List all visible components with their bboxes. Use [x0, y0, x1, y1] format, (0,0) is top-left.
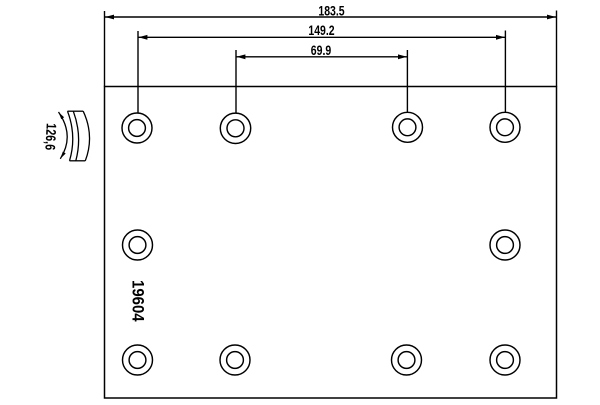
svg-text:69.9: 69.9	[311, 42, 332, 58]
svg-text:149.2: 149.2	[308, 23, 334, 39]
svg-text:183.5: 183.5	[318, 3, 344, 19]
svg-text:19604: 19604	[128, 280, 146, 322]
svg-text:126,6: 126,6	[42, 123, 59, 151]
